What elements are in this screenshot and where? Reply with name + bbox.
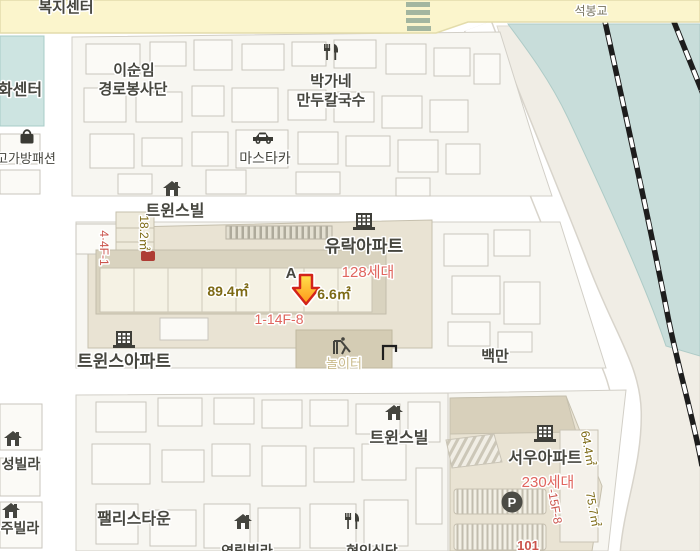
hatched-walkway [446, 434, 502, 468]
parking-icon: P [502, 492, 523, 513]
apartment-building-icon [534, 425, 556, 442]
label-bokji-center[interactable]: 복지센터 [38, 0, 93, 16]
label-parkgane-2[interactable]: 만두칼국수 [296, 92, 365, 109]
label-area-89-4: 89.4㎡ [207, 283, 248, 299]
label-isunim[interactable]: 이순임 [113, 62, 154, 79]
label-mastaka[interactable]: 마스타카 [239, 150, 291, 166]
label-twins-apartment[interactable]: 트윈스아파트 [77, 352, 171, 371]
label-area-18: 18.2㎡ [137, 215, 151, 250]
label-twinsville-bottom[interactable]: 트윈스빌 [370, 429, 429, 447]
map-canvas[interactable]: P 복지센터 석봉교 화센터 고가방패션 이순임 경로봉사단 박가네 만두칼국수… [0, 0, 700, 551]
label-yurak-units: 128세대 [342, 264, 395, 281]
label-twinsville-top[interactable]: 트윈스빌 [146, 202, 205, 220]
label-culture-center[interactable]: 화센터 [0, 80, 42, 99]
label-bag-fashion[interactable]: 고가방패션 [0, 151, 56, 166]
label-lot-4-4f-1: 4·4F-1 [97, 230, 111, 266]
label-seou-units: 230세대 [522, 474, 575, 491]
apartment-building-icon [353, 213, 375, 230]
label-baekman[interactable]: 백만 [481, 348, 509, 365]
label-isunim-2[interactable]: 경로봉사단 [98, 80, 167, 98]
parking-row [454, 489, 546, 514]
red-badge [141, 251, 155, 261]
svg-text:P: P [508, 495, 517, 510]
label-seokbong-bridge[interactable]: 석봉교 [574, 4, 607, 18]
label-lot-1-14f-8: 1-14F-8 [254, 311, 303, 327]
label-101: 101 [517, 538, 539, 551]
label-ju-villa[interactable]: 주빌라 [1, 520, 40, 536]
label-bottom-villa[interactable]: 연립빌라 [221, 543, 273, 551]
label-bottom-restaurant[interactable]: 현인식당 [346, 543, 398, 551]
label-playground[interactable]: 놀이터 [326, 356, 362, 371]
label-block-a: A [286, 265, 297, 282]
label-parkgane[interactable]: 박가네 [310, 73, 351, 90]
label-yurak-apartment[interactable]: 유락아파트 [325, 237, 404, 256]
label-sung-villa[interactable]: 성빌라 [2, 456, 41, 472]
label-seou-apartment[interactable]: 서우아파트 [508, 449, 582, 467]
parking-hatch-strip [226, 226, 332, 239]
label-palace-town[interactable]: 팰리스타운 [97, 510, 171, 528]
culture-center-building [0, 36, 44, 126]
apartment-building-icon [113, 331, 135, 348]
label-area-6-6: 6.6㎡ [317, 286, 350, 302]
